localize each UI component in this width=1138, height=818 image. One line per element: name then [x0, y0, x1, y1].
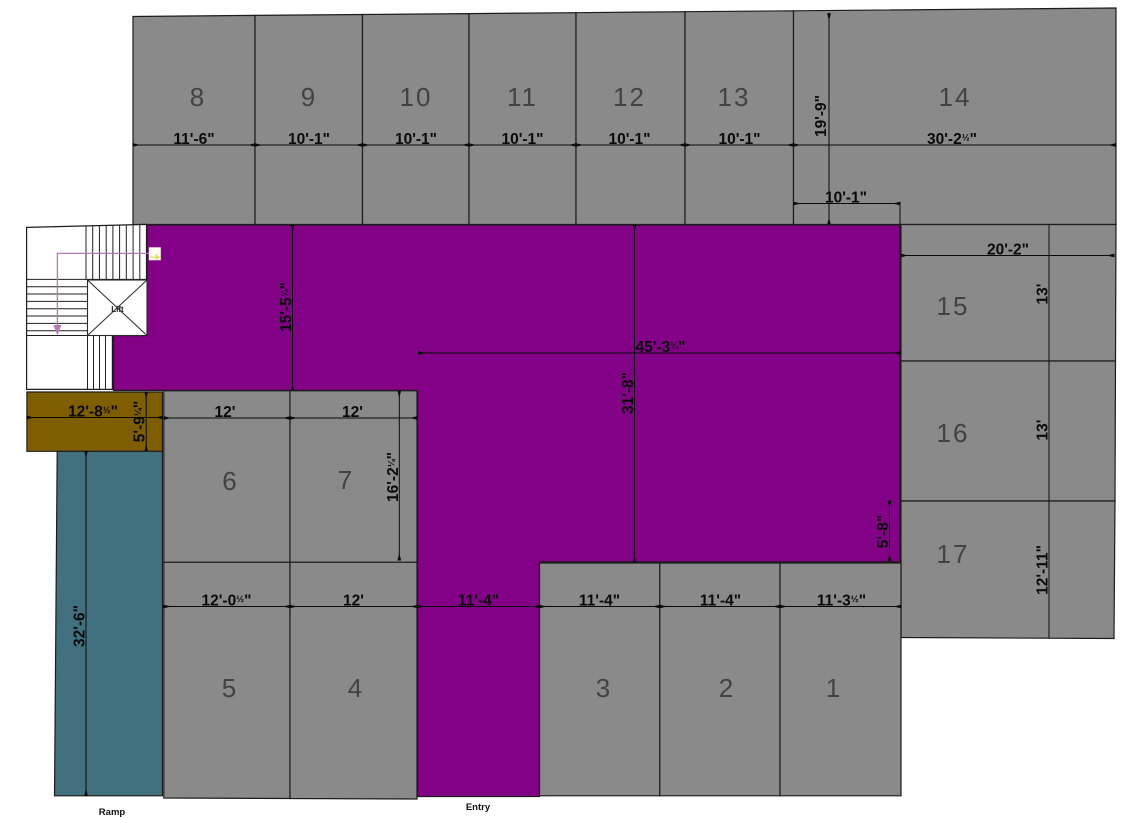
svg-text:19'-9": 19'-9": [813, 95, 830, 137]
svg-text:12'-8½": 12'-8½": [68, 404, 118, 421]
svg-text:5: 5: [222, 673, 238, 703]
svg-text:16: 16: [937, 418, 970, 448]
svg-text:20'-2": 20'-2": [987, 242, 1029, 259]
svg-text:10'-1": 10'-1": [395, 131, 437, 148]
svg-text:11: 11: [507, 82, 538, 112]
svg-text:10: 10: [400, 82, 433, 112]
svg-text:Ramp: Ramp: [99, 807, 126, 818]
svg-text:6: 6: [222, 466, 238, 496]
svg-text:11'-4": 11'-4": [458, 593, 499, 610]
svg-text:3: 3: [596, 673, 612, 703]
svg-text:1: 1: [826, 673, 842, 703]
svg-text:10'-1": 10'-1": [288, 131, 330, 148]
svg-text:31'-8": 31'-8": [620, 372, 637, 414]
svg-text:11'-6": 11'-6": [173, 131, 214, 148]
svg-text:Lift: Lift: [111, 305, 124, 314]
svg-text:15'-5¼": 15'-5¼": [278, 282, 295, 332]
svg-text:5'-9¼": 5'-9¼": [132, 401, 149, 442]
svg-text:12': 12': [342, 404, 363, 421]
svg-text:12: 12: [613, 82, 646, 112]
svg-text:13: 13: [718, 82, 751, 112]
svg-text:Entry: Entry: [466, 802, 491, 813]
svg-text:10'-1": 10'-1": [608, 131, 650, 148]
svg-text:12'-11": 12'-11": [1035, 545, 1052, 595]
svg-text:45'-3¼": 45'-3¼": [635, 339, 685, 356]
svg-text:15: 15: [937, 291, 970, 321]
svg-text:5'-8": 5'-8": [875, 515, 892, 548]
svg-text:14: 14: [939, 82, 972, 112]
svg-text:12': 12': [215, 404, 236, 421]
svg-text:10'-1": 10'-1": [718, 131, 760, 148]
svg-text:12'-0½": 12'-0½": [201, 593, 251, 610]
svg-text:9: 9: [301, 82, 317, 112]
svg-text:12': 12': [343, 593, 364, 610]
svg-text:11'-4": 11'-4": [579, 593, 620, 610]
svg-text:11'-3½": 11'-3½": [817, 593, 866, 610]
svg-text:10'-1": 10'-1": [825, 190, 867, 207]
svg-text:16'-2¼": 16'-2¼": [385, 452, 402, 502]
svg-text:30'-2½": 30'-2½": [927, 131, 977, 148]
svg-text:13': 13': [1035, 284, 1052, 305]
svg-text:11'-4": 11'-4": [700, 593, 741, 610]
svg-text:32'-6": 32'-6": [72, 605, 89, 647]
svg-text:13': 13': [1035, 420, 1052, 441]
svg-text:8: 8: [190, 82, 206, 112]
svg-text:10'-1": 10'-1": [501, 131, 543, 148]
svg-text:2: 2: [719, 673, 735, 703]
svg-text:7: 7: [338, 465, 354, 495]
svg-text:4: 4: [348, 673, 364, 703]
svg-text:17: 17: [937, 539, 970, 569]
